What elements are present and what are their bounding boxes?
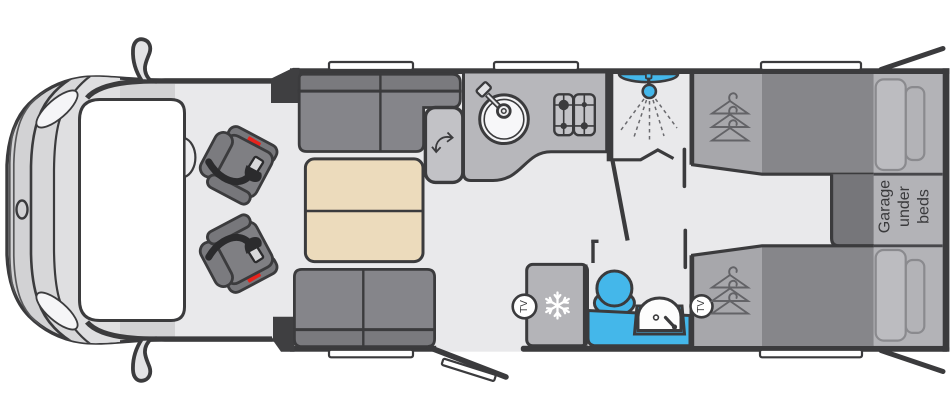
- svg-text:Garage: Garage: [877, 180, 894, 233]
- svg-text:under: under: [896, 185, 913, 227]
- svg-text:TV: TV: [696, 300, 707, 313]
- svg-text:beds: beds: [916, 189, 933, 224]
- svg-text:TV: TV: [519, 300, 530, 313]
